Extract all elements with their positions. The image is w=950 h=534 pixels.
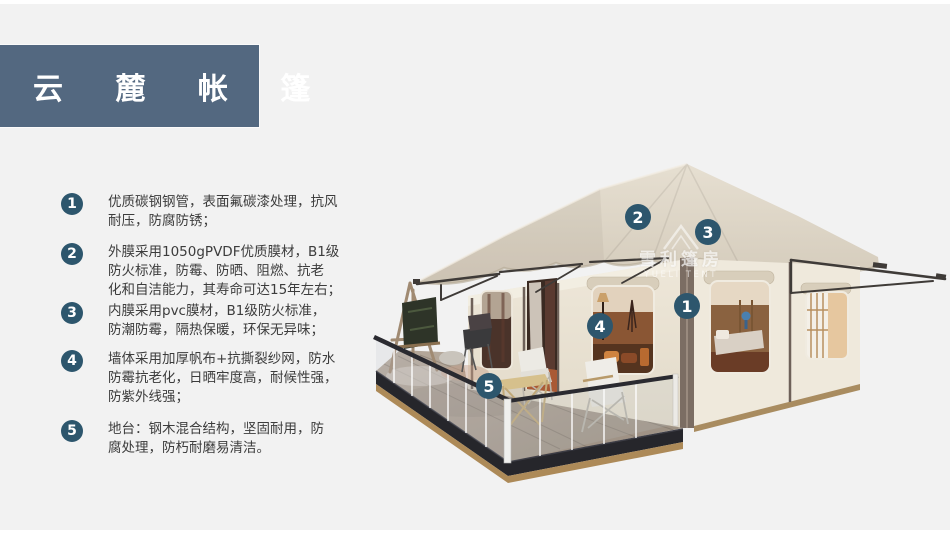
tent-right-wall <box>694 259 860 432</box>
callout-marker-5: 5 <box>476 373 502 399</box>
pouf <box>439 351 465 365</box>
callout-marker-1: 1 <box>674 293 700 319</box>
callout-marker-2: 2 <box>625 204 651 230</box>
callout-marker-4: 4 <box>587 313 613 339</box>
bedroom-window <box>704 271 774 373</box>
tent-illustration <box>0 0 950 534</box>
callout-marker-3: 3 <box>695 219 721 245</box>
corner-pole <box>680 257 694 428</box>
far-right-window <box>801 283 851 359</box>
